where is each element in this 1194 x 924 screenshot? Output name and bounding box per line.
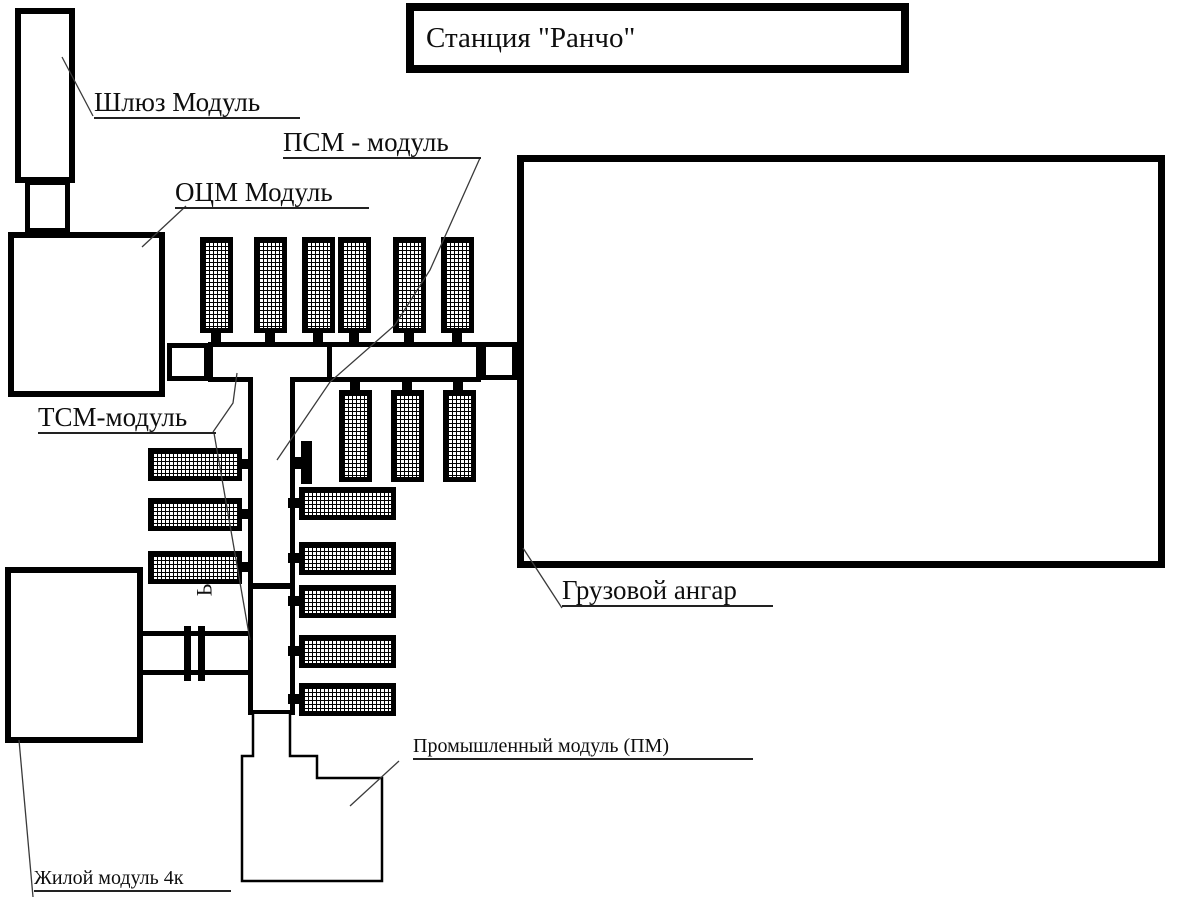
- panel-stem: [288, 596, 300, 606]
- leader-industrial: [350, 761, 399, 806]
- panel-stem: [265, 331, 275, 344]
- solar-panel-left-3: [148, 551, 242, 584]
- solar-panel-right-3: [299, 585, 396, 618]
- solar-panel-top-1: [200, 237, 233, 333]
- title-box: Станция "Ранчо": [406, 3, 909, 73]
- solar-panel-top-3: [302, 237, 335, 333]
- psm-dock-bar: [301, 441, 312, 484]
- corridor-divider: [248, 583, 295, 589]
- panel-stem: [240, 459, 252, 469]
- panel-stem: [240, 509, 252, 519]
- cargo-hangar-outline: [517, 155, 1165, 568]
- solar-panel-right-1: [299, 487, 396, 520]
- solar-panel-mid-2: [391, 390, 424, 482]
- panel-stem: [288, 498, 300, 508]
- living-module-arm: [138, 631, 253, 675]
- living-module-label: Жилой модуль 4к: [34, 868, 231, 892]
- solar-panel-mid-3: [443, 390, 476, 482]
- living-module-outline: [5, 567, 143, 743]
- panel-stem: [211, 331, 221, 344]
- panel-stem: [288, 646, 300, 656]
- living-coupler-bar-left: [184, 626, 191, 681]
- ocm-module-outline: [8, 232, 165, 397]
- solar-panel-top-5: [393, 237, 426, 333]
- airlock-coupler: [25, 180, 70, 233]
- diagram-title: Станция "Ранчо": [414, 22, 635, 55]
- solar-panel-top-4: [338, 237, 371, 333]
- psm-dock-stem: [290, 457, 301, 469]
- panel-stem: [350, 379, 360, 392]
- solar-panel-left-2: [148, 498, 242, 531]
- corridor-right-segment: [327, 342, 481, 382]
- industrial-module-outline: [242, 714, 382, 881]
- station-diagram: Станция "Ранчо": [0, 0, 1194, 924]
- living-coupler-bar-right: [198, 626, 205, 681]
- corridor-vertical-segment: [248, 377, 295, 715]
- panel-stem: [402, 379, 412, 392]
- leader-living: [19, 740, 33, 897]
- ocm-corridor-connector: [167, 343, 209, 381]
- airlock-module-outline: [15, 8, 75, 183]
- panel-stem: [349, 331, 359, 344]
- panel-stem: [404, 331, 414, 344]
- panel-stem: [453, 379, 463, 392]
- solar-panel-right-5: [299, 683, 396, 716]
- solar-panel-top-6: [441, 237, 474, 333]
- panel-stem: [452, 331, 462, 344]
- ocm-module-label: ОЦМ Модуль: [175, 178, 369, 209]
- solar-panel-right-4: [299, 635, 396, 668]
- cargo-hangar-label: Грузовой ангар: [562, 576, 773, 607]
- hangar-coupler: [481, 342, 517, 380]
- solar-panel-mid-1: [339, 390, 372, 482]
- stray-glyph: Ь: [192, 584, 216, 597]
- industrial-module-label: Промышленный модуль (ПМ): [413, 736, 753, 760]
- solar-panel-right-2: [299, 542, 396, 575]
- airlock-module-label: Шлюз Модуль: [94, 88, 300, 119]
- tsm-module-label: ТСМ-модуль: [38, 403, 216, 434]
- panel-stem: [288, 694, 300, 704]
- solar-panel-top-2: [254, 237, 287, 333]
- panel-stem: [313, 331, 323, 344]
- panel-stem: [240, 562, 252, 572]
- panel-stem: [288, 553, 300, 563]
- corridor-left-segment: [208, 342, 332, 382]
- psm-module-label: ПСМ - модуль: [283, 128, 481, 159]
- solar-panel-left-1: [148, 448, 242, 481]
